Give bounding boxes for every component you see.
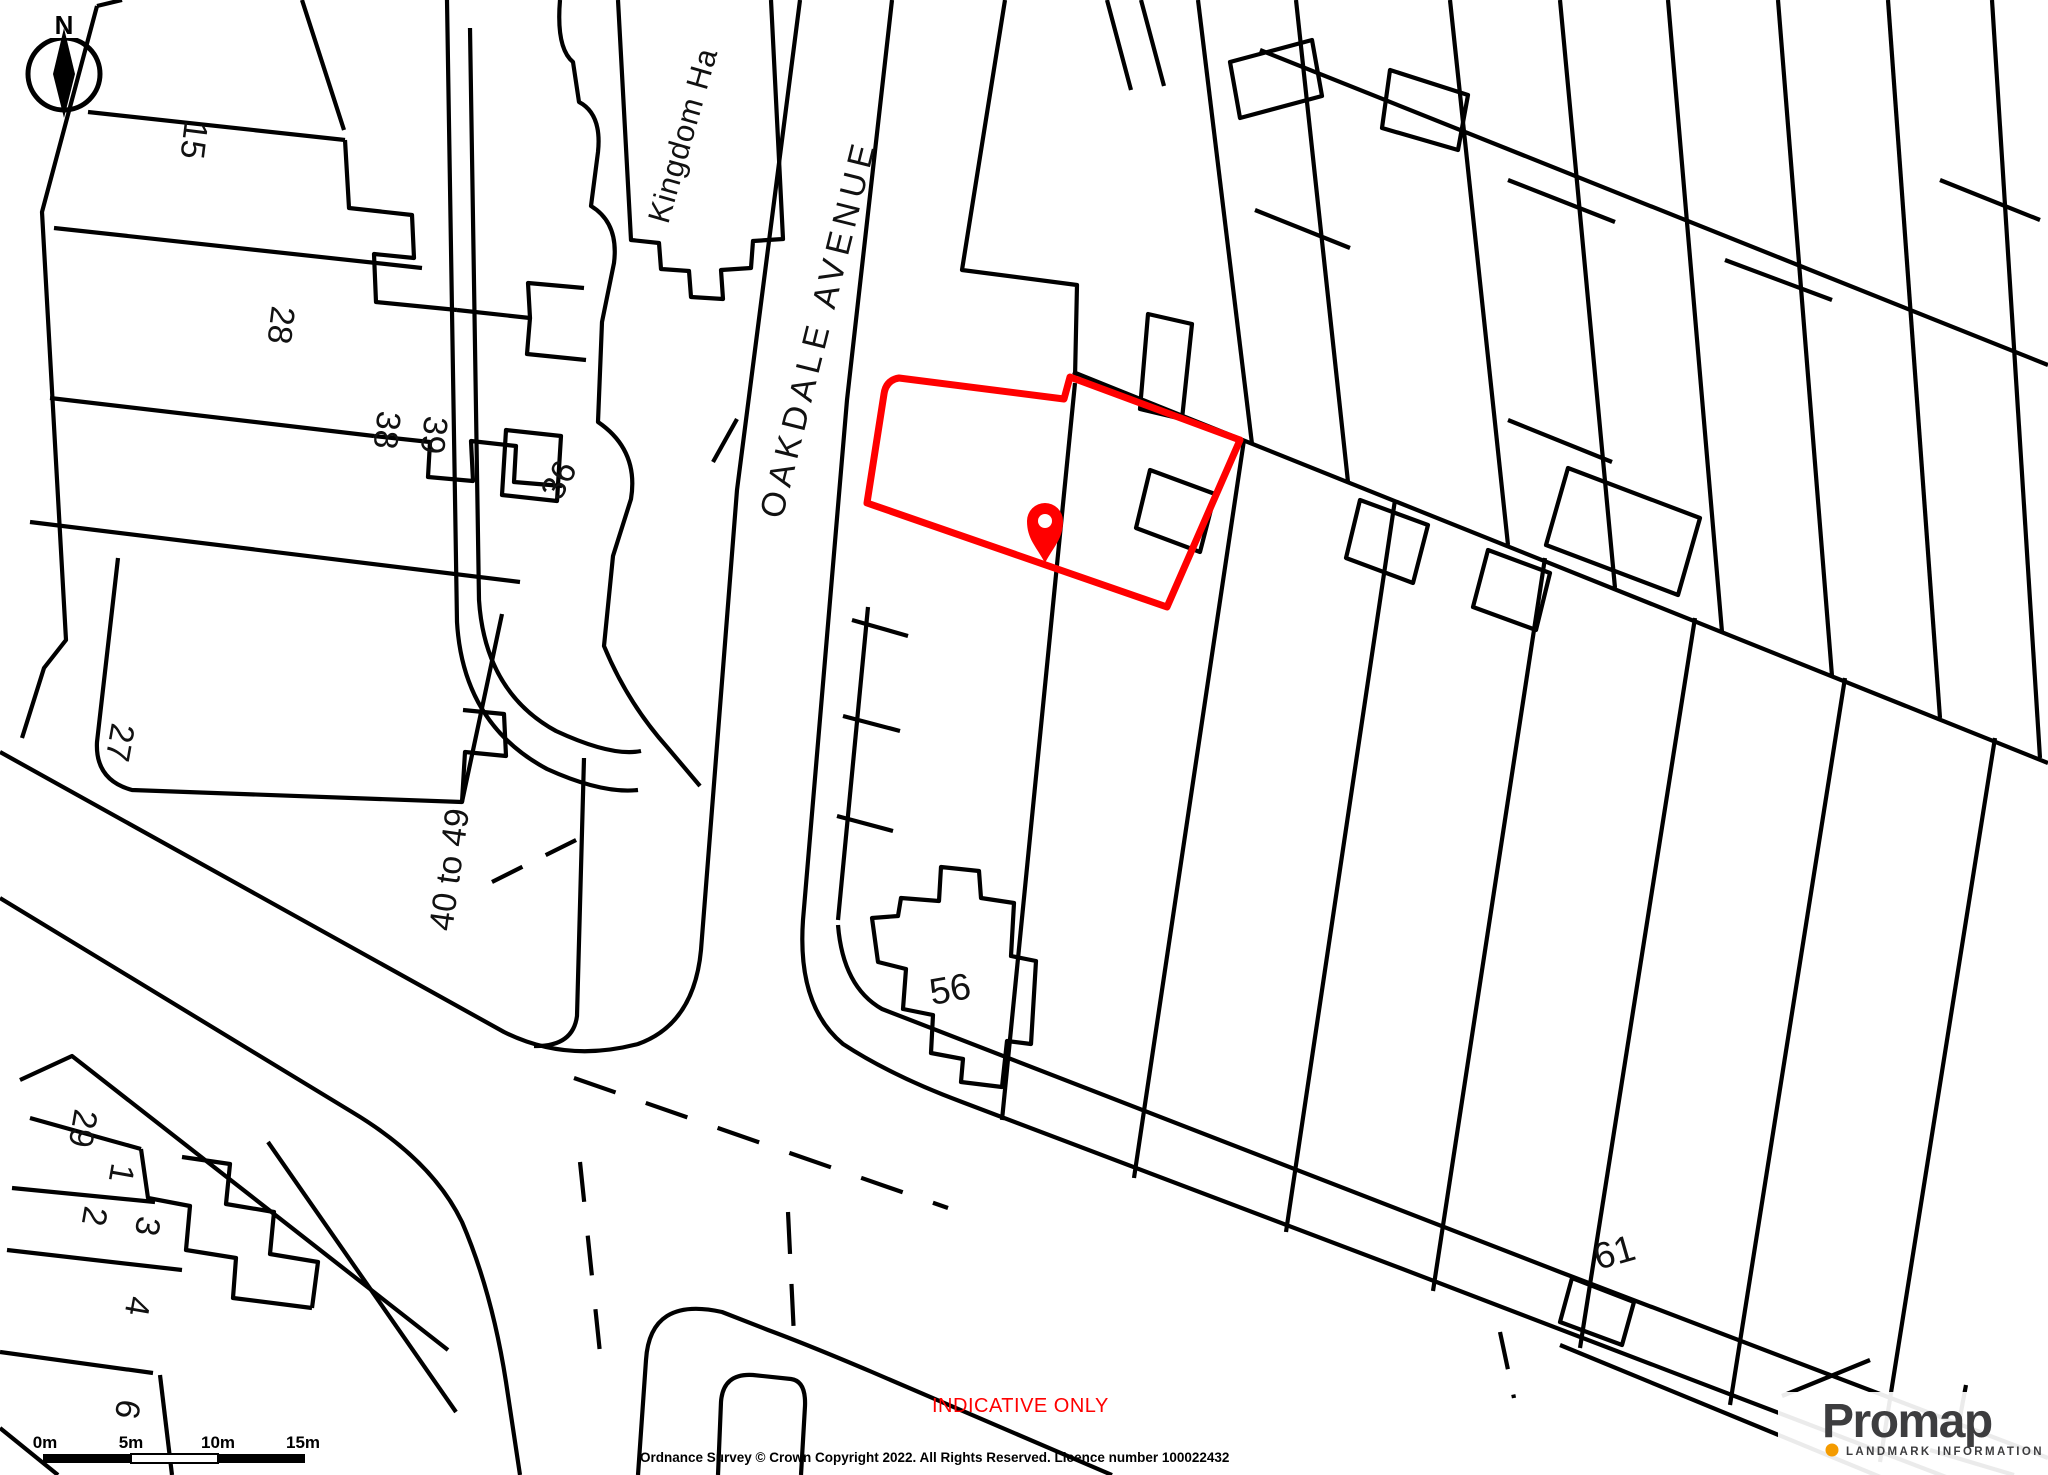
map-line bbox=[97, 0, 122, 6]
promap-logo: Promap LANDMARK INFORMATION bbox=[1778, 1392, 2048, 1475]
logo-brand-text: Promap bbox=[1822, 1395, 1992, 1448]
map-line bbox=[1141, 0, 1164, 86]
map-canvas: Kingdom Ha OAKDALE AVENUE 15 28 38 39 36… bbox=[0, 0, 2048, 1475]
map-line bbox=[1782, 1360, 1870, 1396]
map-line bbox=[1880, 738, 1995, 1462]
parcel-and-road-lines bbox=[0, 0, 2048, 1475]
dashed-line bbox=[492, 834, 588, 882]
plot-number-38: 38 bbox=[365, 409, 407, 451]
plot-number-40-49: 40 to 49 bbox=[422, 806, 477, 933]
map-line bbox=[50, 398, 374, 436]
map-line bbox=[462, 710, 506, 802]
plot-number-28: 28 bbox=[259, 304, 301, 346]
map-line bbox=[12, 1188, 155, 1202]
kingdom-hall-building-outline bbox=[618, 0, 783, 299]
plot-number-2: 2 bbox=[74, 1204, 115, 1229]
scale-bar-segment bbox=[218, 1454, 305, 1463]
plot-number-3: 3 bbox=[127, 1214, 168, 1239]
plot-number-29: 29 bbox=[61, 1107, 105, 1151]
map-line bbox=[843, 716, 900, 731]
map-line bbox=[54, 228, 422, 268]
map-line bbox=[1286, 500, 1395, 1232]
map-line bbox=[7, 1250, 182, 1270]
north-label: N bbox=[55, 10, 74, 40]
kingdom-hall-label: Kingdom Ha bbox=[641, 44, 724, 227]
map-line bbox=[1730, 678, 1845, 1405]
site-plan-map: Kingdom Ha OAKDALE AVENUE 15 28 38 39 36… bbox=[0, 0, 2048, 1475]
street-name-label: OAKDALE AVENUE bbox=[753, 135, 884, 522]
map-line bbox=[527, 318, 586, 360]
map-line bbox=[22, 6, 97, 738]
scale-tick-10m: 10m bbox=[201, 1433, 235, 1452]
map-line bbox=[1940, 180, 2040, 220]
map-line bbox=[1255, 210, 1350, 248]
map-line bbox=[1260, 50, 2048, 365]
map-line bbox=[1725, 260, 1832, 300]
map-line bbox=[88, 112, 345, 140]
map-line bbox=[0, 1352, 153, 1373]
dashed-line bbox=[1500, 1332, 1514, 1398]
map-line bbox=[1198, 0, 1252, 444]
map-line bbox=[1546, 468, 1700, 595]
plot-number-27: 27 bbox=[98, 721, 142, 765]
map-line bbox=[1508, 420, 1612, 462]
map-line bbox=[838, 607, 868, 920]
map-labels: Kingdom Ha OAKDALE AVENUE 15 28 38 39 36… bbox=[61, 44, 1640, 1422]
plot-number-4: 4 bbox=[117, 1294, 158, 1319]
map-line bbox=[1888, 0, 1940, 718]
map-line bbox=[1992, 0, 2040, 758]
dashed-line bbox=[788, 1212, 794, 1336]
map-line bbox=[1433, 558, 1545, 1291]
scale-bar-segment bbox=[131, 1454, 218, 1463]
logo-tagline-text: LANDMARK INFORMATION bbox=[1846, 1446, 2044, 1458]
dashed-line bbox=[574, 1078, 948, 1208]
north-arrow-icon: N bbox=[28, 10, 100, 118]
map-line bbox=[1778, 0, 1832, 676]
plot-number-6: 6 bbox=[107, 1397, 148, 1422]
map-line bbox=[1002, 383, 1075, 1120]
map-line bbox=[713, 419, 737, 462]
road-edge-east bbox=[802, 0, 2048, 1475]
map-line bbox=[962, 0, 1077, 378]
plot-number-39: 39 bbox=[412, 414, 454, 456]
plot-number-1: 1 bbox=[101, 1161, 142, 1186]
map-line bbox=[268, 1142, 456, 1412]
map-line bbox=[302, 0, 344, 130]
map-line bbox=[534, 758, 584, 1046]
map-line bbox=[852, 620, 908, 636]
dashed-line bbox=[580, 1162, 602, 1372]
map-line bbox=[1382, 70, 1468, 150]
map-line bbox=[345, 140, 457, 310]
map-line bbox=[97, 558, 502, 802]
plot-number-56: 56 bbox=[926, 965, 974, 1013]
map-line bbox=[1107, 0, 1131, 90]
map-line bbox=[1450, 0, 1508, 545]
scale-tick-0m: 0m bbox=[33, 1433, 58, 1452]
logo-dot-icon bbox=[1826, 1444, 1839, 1457]
map-line bbox=[838, 925, 2048, 1458]
plot-number-15: 15 bbox=[172, 119, 214, 161]
map-line bbox=[1560, 0, 1615, 588]
scale-bar: 0m 5m 10m 15m bbox=[33, 1433, 320, 1463]
map-line bbox=[30, 522, 520, 582]
scale-tick-15m: 15m bbox=[286, 1433, 320, 1452]
map-line bbox=[1136, 470, 1215, 552]
copyright-text: Ordnance Survey © Crown Copyright 2022. … bbox=[640, 1450, 1229, 1465]
map-line bbox=[1296, 0, 1348, 482]
indicative-only-watermark: INDICATIVE ONLY bbox=[932, 1395, 1109, 1417]
scale-bar-segment bbox=[43, 1454, 131, 1463]
scale-tick-5m: 5m bbox=[119, 1433, 144, 1452]
